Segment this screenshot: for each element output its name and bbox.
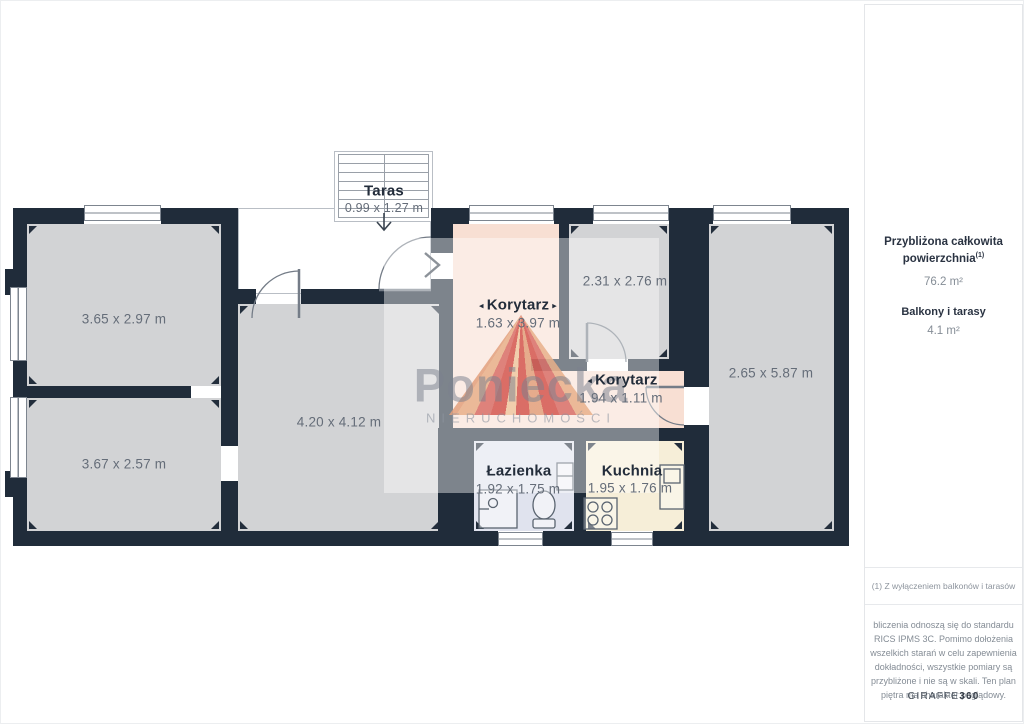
kitchen-label: Kuchnia: [602, 463, 663, 480]
door-arc: [252, 271, 299, 318]
room-c-dims: 2.31 x 2.76 m: [583, 274, 667, 289]
kitchen-dims: 1.95 x 1.76 m: [588, 481, 672, 496]
toilet-base: [533, 519, 555, 528]
stairs-down-arrow-icon: [377, 213, 391, 230]
balcony-value: 4.1 m²: [865, 325, 1022, 337]
corridor-1-name: Korytarz: [487, 297, 549, 314]
terrace-dims: 0.99 x 1.27 m: [345, 201, 423, 215]
dim-arrow-right-icon: ▸: [549, 301, 560, 311]
giraffe360-logo: GIRAFFE360: [865, 691, 1022, 702]
room-b-dims: 3.67 x 2.57 m: [82, 457, 166, 472]
footnote-text: (1) Z wyłączeniem balkonów i tarasów: [865, 581, 1022, 591]
room-d-dims: 2.65 x 5.87 m: [729, 366, 813, 381]
corridor-1-label: ◂Korytarz▸: [476, 297, 560, 314]
room-a-dims: 3.65 x 2.97 m: [82, 312, 166, 327]
total-area-value: 76.2 m²: [865, 276, 1022, 288]
total-area-label: Przybliżona całkowita powierzchnia(1): [879, 234, 1008, 269]
watermark-subtitle: NIERUCHOMOŚCI: [426, 411, 616, 426]
dim-arrow-left-icon: ◂: [476, 301, 487, 311]
stove-icon: [584, 498, 617, 529]
bathroom-dims: 1.92 x 1.75 m: [476, 482, 560, 497]
giraffe-text: GIRAFFE: [907, 691, 959, 702]
footnote-marker: (1): [976, 252, 985, 259]
total-area-text: Przybliżona całkowita powierzchnia: [884, 236, 1003, 265]
balcony-label: Balkony i tarasy: [865, 306, 1022, 318]
corridor-2-label: ◂Korytarz: [584, 372, 657, 389]
central-room-dims: 4.20 x 4.12 m: [297, 415, 381, 430]
corridor-2-dims: 1.94 x 1.11 m: [579, 391, 662, 406]
corridor-1-dims: 1.63 x 3.97 m: [476, 316, 560, 331]
terrace-label: Taras: [364, 183, 404, 200]
giraffe-360-text: 360: [959, 691, 979, 702]
dim-arrow-left-icon: ◂: [584, 376, 595, 386]
info-panel: Przybliżona całkowita powierzchnia(1) 76…: [864, 4, 1023, 722]
corridor-2-name: Korytarz: [595, 372, 657, 389]
bathroom-label: Łazienka: [487, 463, 552, 480]
divider: [865, 567, 1022, 568]
divider: [865, 604, 1022, 605]
floorplan-page: Poniecka NIERUCHOMOŚCI Taras 0.99 x 1.27…: [0, 0, 1024, 724]
area-summary: Przybliżona całkowita powierzchnia(1) 76…: [865, 234, 1022, 337]
